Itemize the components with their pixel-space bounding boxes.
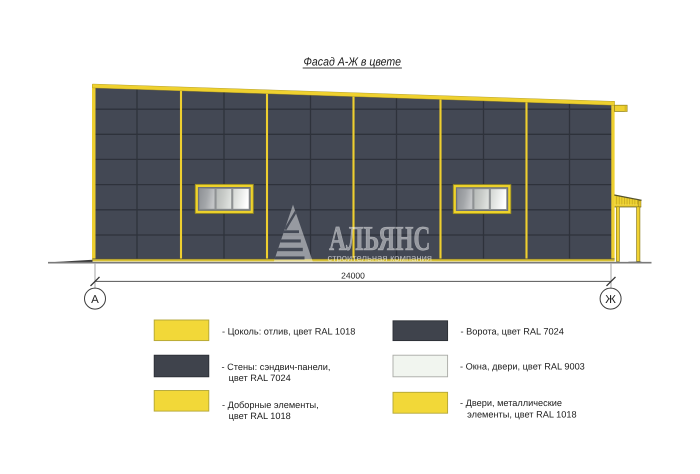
svg-text:цвет RAL 7024: цвет RAL 7024 xyxy=(229,373,291,383)
svg-text:- Окна, двери, цвет RAL 9003: - Окна, двери, цвет RAL 9003 xyxy=(460,361,585,371)
svg-text:- Ворота, цвет RAL 7024: - Ворота, цвет RAL 7024 xyxy=(461,326,564,336)
svg-text:- Доборные элементы,: - Доборные элементы, xyxy=(222,400,319,410)
svg-text:- Стены: сэндвич-панели,: - Стены: сэндвич-панели, xyxy=(222,362,331,372)
svg-text:элементы, цвет RAL 1018: элементы, цвет RAL 1018 xyxy=(467,409,576,419)
svg-text:24000: 24000 xyxy=(341,270,365,280)
svg-text:- Двери, металлические: - Двери, металлические xyxy=(460,398,562,408)
svg-text:Фасад А-Ж в цвете: Фасад А-Ж в цвете xyxy=(304,54,402,68)
svg-text:АЛЬЯНС: АЛЬЯНС xyxy=(329,219,431,258)
svg-text:цвет RAL 1018: цвет RAL 1018 xyxy=(229,411,291,421)
svg-text:А: А xyxy=(91,294,99,306)
svg-text:- Цоколь: отлив, цвет RAL 1018: - Цоколь: отлив, цвет RAL 1018 xyxy=(222,326,355,336)
svg-text:Ж: Ж xyxy=(605,294,616,306)
svg-text:строительная компания: строительная компания xyxy=(328,253,433,263)
